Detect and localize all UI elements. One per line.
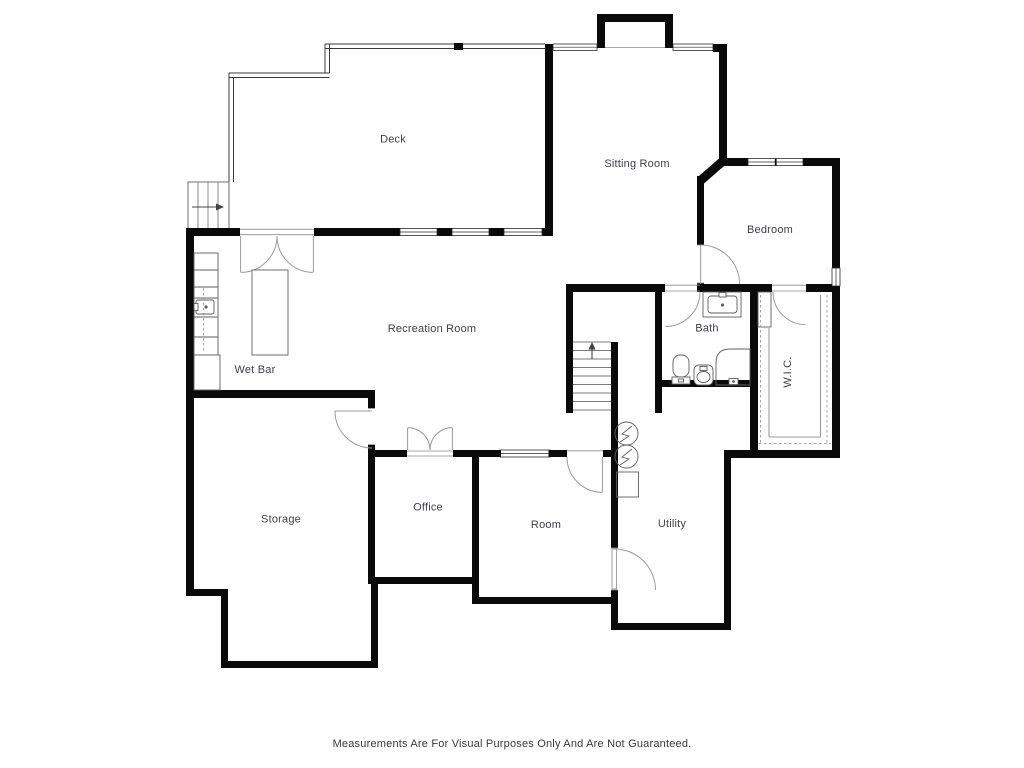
door-wic bbox=[772, 285, 806, 324]
bar-island bbox=[252, 270, 288, 355]
door-room bbox=[567, 451, 603, 493]
window bbox=[452, 229, 489, 236]
double-door-office bbox=[407, 428, 453, 456]
room-labels: Deck Sitting Room Bedroom Recreation Roo… bbox=[235, 134, 794, 532]
room-label-office: Office bbox=[413, 502, 443, 514]
window bbox=[400, 229, 437, 236]
window bbox=[504, 229, 542, 236]
wic-shelving bbox=[758, 292, 831, 444]
bath-fixtures bbox=[672, 292, 750, 385]
room-label-recreation-room: Recreation Room bbox=[388, 323, 477, 335]
water-heater-icon bbox=[615, 422, 638, 445]
toilet-icon bbox=[672, 355, 690, 384]
room-label-bath: Bath bbox=[695, 323, 718, 335]
french-door bbox=[240, 229, 314, 272]
room-label-storage: Storage bbox=[261, 514, 301, 526]
room-label-sitting-room: Sitting Room bbox=[604, 158, 669, 170]
room-label-room: Room bbox=[531, 519, 561, 531]
room-label-utility: Utility bbox=[658, 518, 687, 530]
doors bbox=[240, 229, 806, 590]
room-label-wic: W.I.C. bbox=[782, 356, 794, 387]
shower-icon bbox=[716, 349, 750, 385]
water-heater-icon bbox=[615, 445, 638, 468]
utility-equipment-box bbox=[617, 472, 639, 497]
bar-sink-icon bbox=[194, 300, 214, 314]
room-label-bedroom: Bedroom bbox=[747, 224, 793, 236]
floor-plan-page: Deck Sitting Room Bedroom Recreation Roo… bbox=[0, 0, 1024, 768]
deck-railing bbox=[229, 44, 545, 182]
window bbox=[673, 44, 713, 51]
door-bedroom bbox=[697, 245, 740, 284]
staircase bbox=[573, 342, 611, 410]
disclaimer-text: Measurements Are For Visual Purposes Onl… bbox=[333, 738, 692, 750]
floor-plan: Deck Sitting Room Bedroom Recreation Roo… bbox=[0, 0, 1024, 768]
window bbox=[553, 44, 597, 51]
door-bath bbox=[665, 285, 700, 326]
bidet-icon bbox=[694, 365, 713, 385]
room-label-wet-bar: Wet Bar bbox=[235, 364, 276, 376]
window bbox=[832, 268, 840, 286]
wet-bar-counter bbox=[194, 253, 220, 390]
room-label-deck: Deck bbox=[380, 134, 406, 146]
deck-stairs bbox=[188, 182, 229, 232]
vanity-sink-icon bbox=[703, 292, 741, 317]
window bbox=[498, 450, 552, 457]
door-utility bbox=[611, 548, 656, 590]
wic-shelf-unit bbox=[758, 292, 771, 327]
window bbox=[748, 159, 803, 166]
angled-wall bbox=[700, 161, 723, 181]
windows bbox=[400, 44, 840, 457]
utility-fixtures bbox=[615, 422, 639, 497]
door-storage bbox=[335, 409, 375, 449]
